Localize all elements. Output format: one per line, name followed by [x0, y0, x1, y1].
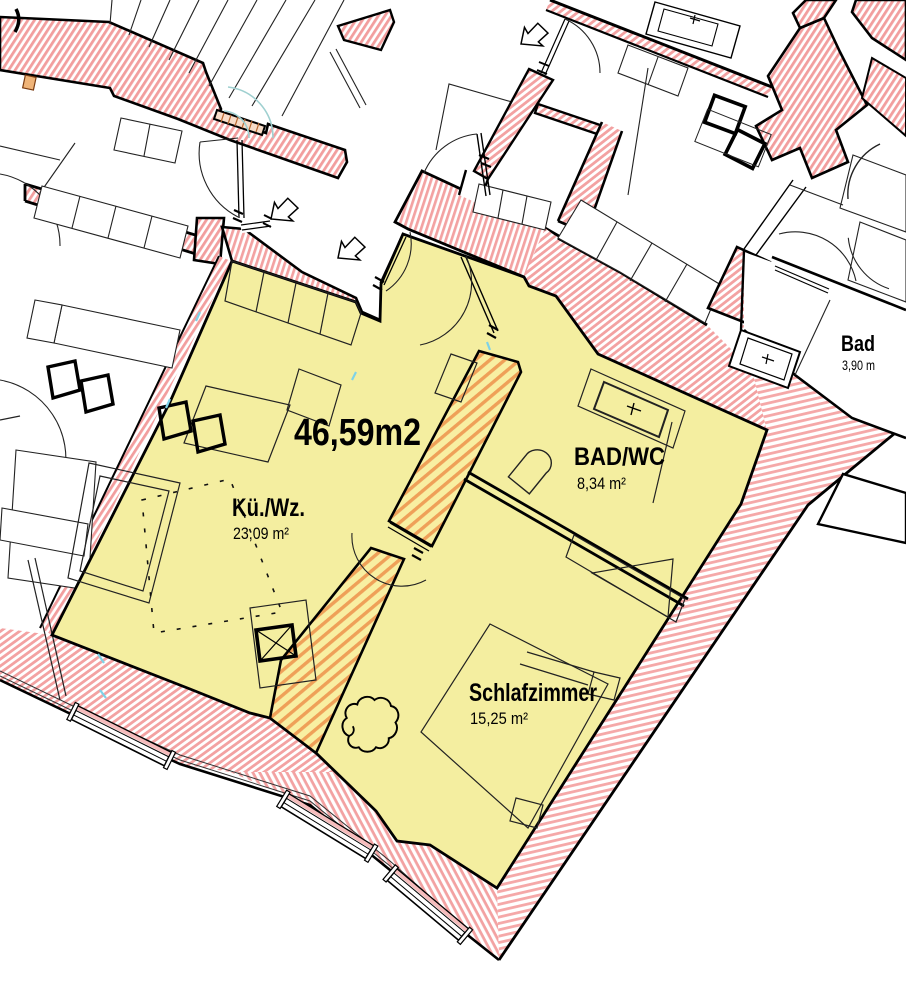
svg-text:8,34 m²: 8,34 m²	[577, 474, 626, 493]
svg-text:46,59m2: 46,59m2	[294, 412, 421, 454]
svg-text:BAD/WC: BAD/WC	[574, 443, 665, 471]
svg-text:Schlafzimmer: Schlafzimmer	[469, 679, 597, 707]
svg-text:15,25 m²: 15,25 m²	[470, 709, 528, 728]
svg-text:3,90 m: 3,90 m	[842, 357, 875, 373]
svg-text:Kü./Wz.: Kü./Wz.	[232, 494, 305, 522]
svg-text:Bad: Bad	[841, 331, 875, 356]
svg-text:23,09 m²: 23,09 m²	[233, 524, 289, 543]
